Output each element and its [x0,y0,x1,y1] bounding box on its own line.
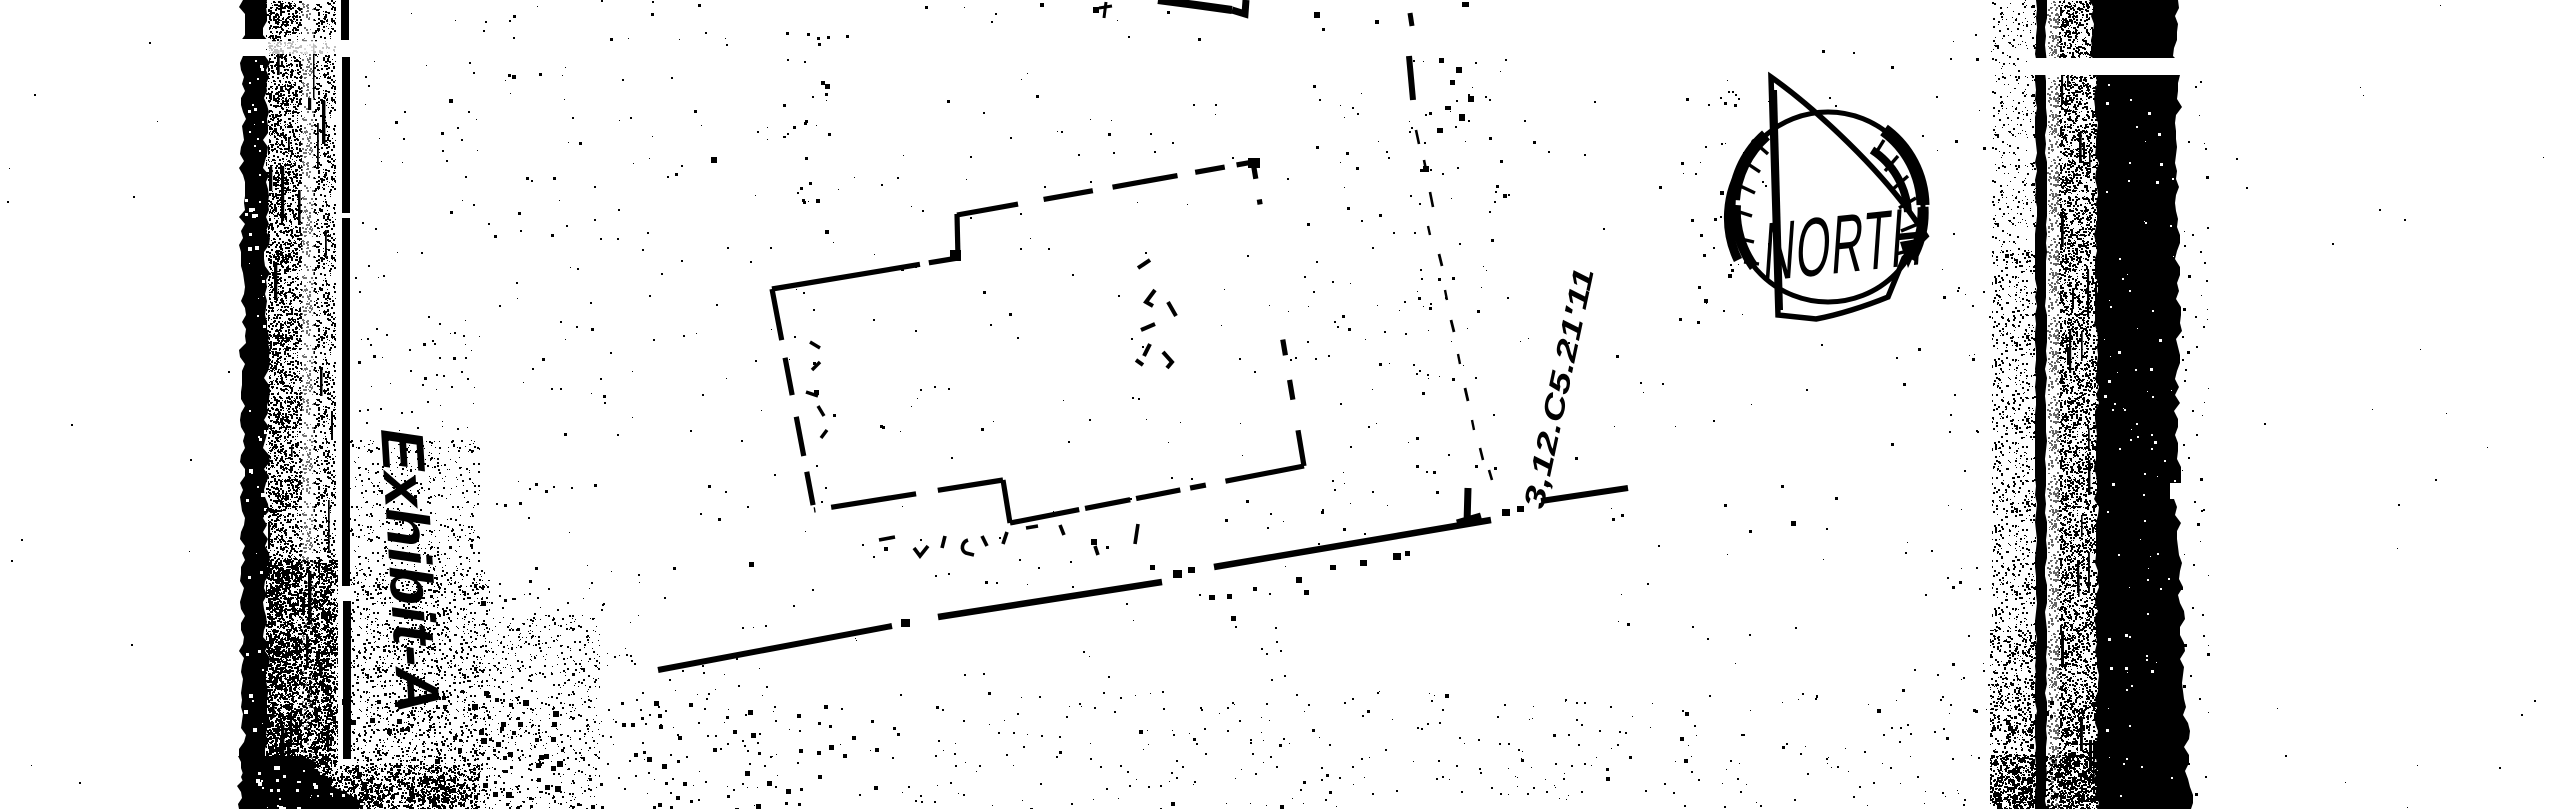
svg-text:NORTH: NORTH [1761,189,1928,299]
